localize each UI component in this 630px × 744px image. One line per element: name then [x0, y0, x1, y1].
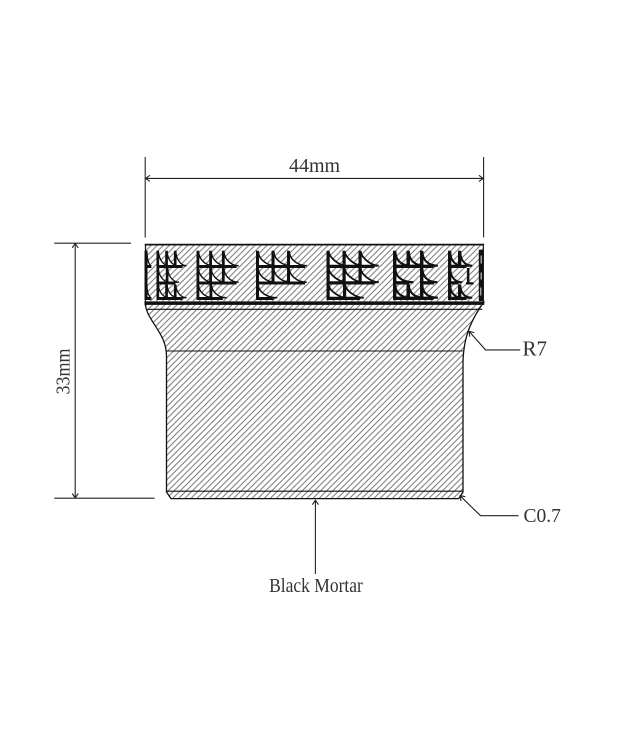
- svg-text:33mm: 33mm: [53, 348, 75, 394]
- svg-text:44mm: 44mm: [289, 155, 341, 177]
- svg-text:Black Mortar: Black Mortar: [269, 575, 363, 597]
- svg-text:R7: R7: [523, 337, 548, 361]
- svg-text:C0.7: C0.7: [524, 506, 562, 527]
